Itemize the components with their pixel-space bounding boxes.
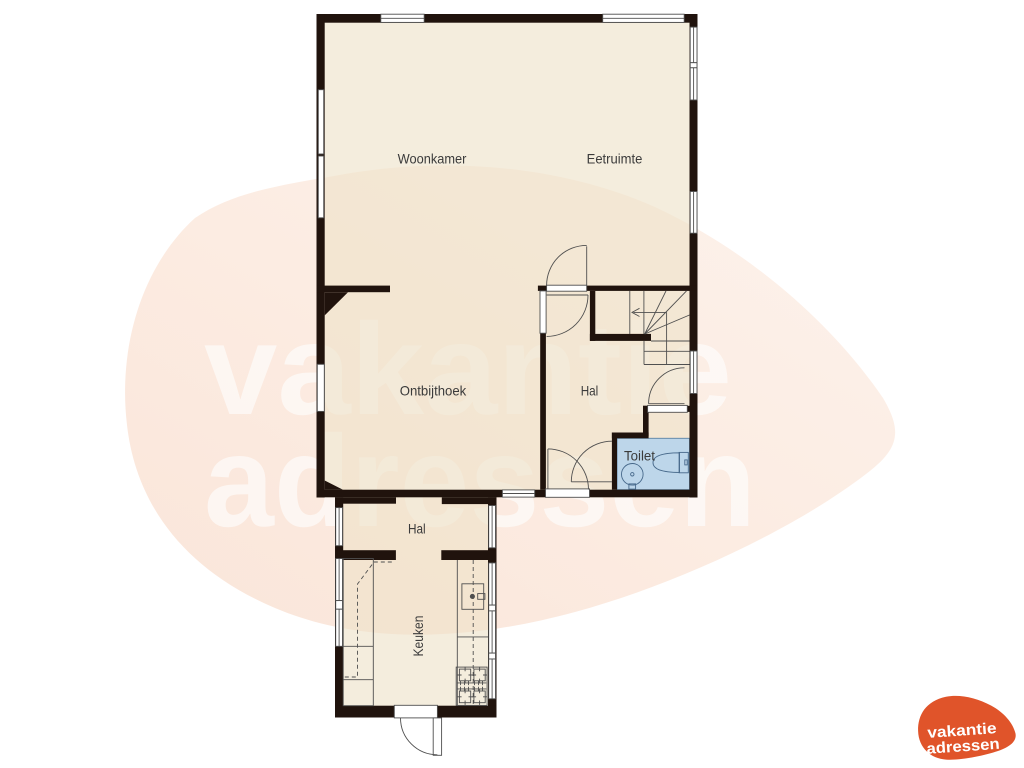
svg-text:Hal: Hal bbox=[408, 521, 426, 537]
svg-text:Toilet: Toilet bbox=[624, 449, 655, 464]
svg-text:Keuken: Keuken bbox=[411, 616, 426, 657]
svg-text:Woonkamer: Woonkamer bbox=[398, 150, 467, 166]
svg-text:Hal: Hal bbox=[581, 383, 599, 399]
svg-text:Eetruimte: Eetruimte bbox=[587, 150, 643, 166]
svg-text:Ontbijthoek: Ontbijthoek bbox=[400, 383, 467, 399]
